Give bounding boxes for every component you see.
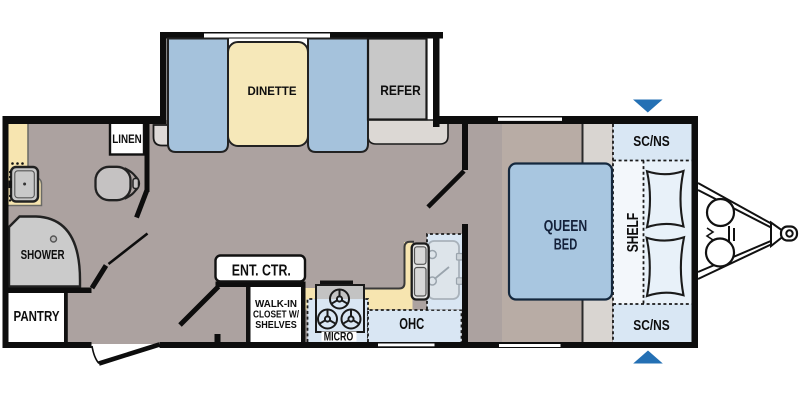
svg-text:SHOWER: SHOWER	[21, 248, 65, 262]
svg-text:SC/NS: SC/NS	[633, 318, 670, 334]
svg-text:BED: BED	[554, 236, 578, 253]
svg-text:QUEEN: QUEEN	[544, 218, 588, 235]
svg-text:SHELF: SHELF	[625, 213, 642, 253]
svg-text:MICRO: MICRO	[324, 330, 354, 344]
svg-text:PANTRY: PANTRY	[14, 309, 60, 325]
svg-text:OHC: OHC	[399, 316, 424, 333]
svg-text:LINEN: LINEN	[112, 132, 142, 146]
svg-text:SC/NS: SC/NS	[633, 134, 670, 150]
svg-text:SHELVES: SHELVES	[255, 319, 297, 331]
svg-text:DINETTE: DINETTE	[248, 86, 297, 98]
svg-text:REFER: REFER	[380, 82, 421, 98]
svg-text:ENT. CTR.: ENT. CTR.	[232, 262, 291, 279]
